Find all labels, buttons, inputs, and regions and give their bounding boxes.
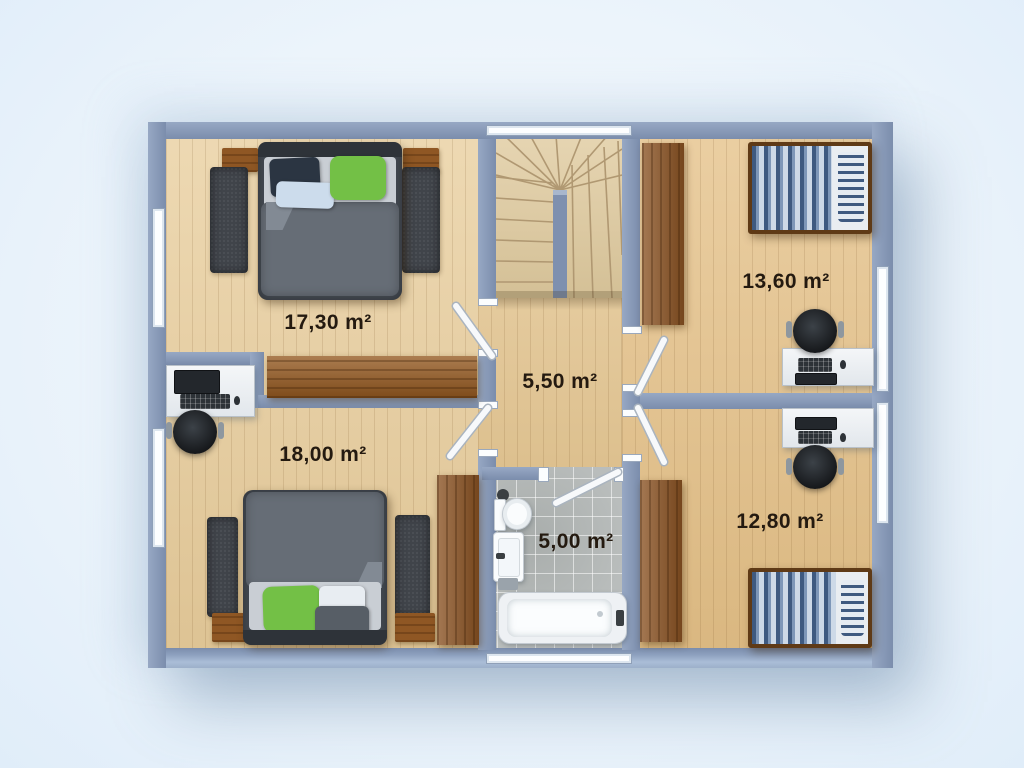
door-jamb <box>614 467 624 482</box>
stairs-shadow <box>496 298 622 310</box>
chair-armrest <box>838 458 844 475</box>
wall-hallway-right-upper <box>622 139 640 333</box>
single-bed-bottom-right <box>748 568 872 648</box>
door-jamb <box>622 409 642 417</box>
door-jamb <box>622 384 642 392</box>
canvas: 17,30 m² 18,00 m² 5,50 m² 13,60 m² 12,80… <box>0 0 1024 768</box>
area-label-bedroom-top-left: 17,30 m² <box>284 311 371 335</box>
wall-hallway-left-mid <box>478 355 496 407</box>
mouse <box>840 360 846 369</box>
staircase <box>496 135 622 298</box>
window-right-lower <box>876 402 889 524</box>
nightstand <box>395 613 435 642</box>
washbasin <box>493 532 524 582</box>
rug <box>402 167 440 273</box>
office-chair <box>793 445 837 489</box>
pillow-light-blue <box>276 181 335 209</box>
door-jamb <box>478 401 498 409</box>
wardrobe <box>642 143 684 325</box>
monitor <box>795 373 837 385</box>
chair-armrest <box>786 321 792 338</box>
striped-pillow <box>838 152 864 222</box>
chair-armrest <box>786 458 792 475</box>
door-jamb <box>538 467 549 482</box>
wall-exterior-right <box>872 122 893 668</box>
floor-plan: 17,30 m² 18,00 m² 5,50 m² 13,60 m² 12,80… <box>148 122 893 668</box>
toilet-bowl <box>502 498 532 530</box>
mouse <box>840 433 846 442</box>
area-label-bedroom-top-right: 13,60 m² <box>742 270 829 294</box>
rug <box>207 517 238 617</box>
striped-duvet <box>752 146 832 230</box>
double-bed-bottom-left <box>243 490 387 645</box>
window-bathroom-bottom <box>486 653 632 664</box>
door-jamb <box>622 454 642 462</box>
monitor <box>795 417 837 430</box>
wall-bathroom-top <box>482 467 546 480</box>
pillow-green <box>330 156 386 200</box>
window-left-upper <box>152 208 165 328</box>
door-jamb <box>622 326 642 334</box>
window-left-lower <box>152 428 165 548</box>
chair-armrest <box>218 422 224 439</box>
basin-faucet <box>496 553 505 559</box>
wardrobe <box>437 475 479 645</box>
keyboard <box>798 358 832 372</box>
rug <box>395 515 430 617</box>
mouse <box>234 396 240 405</box>
stair-newel-wall <box>553 190 567 298</box>
bathtub <box>498 592 627 644</box>
rug <box>210 167 248 273</box>
area-label-bedroom-bottom-left: 18,00 m² <box>279 443 366 467</box>
wall-divider-right <box>640 393 872 409</box>
headboard <box>258 142 402 157</box>
bathtub-faucet <box>616 610 624 626</box>
striped-pillow <box>841 580 864 636</box>
wardrobe <box>640 480 682 642</box>
wall-hallway-right-mid <box>622 391 640 409</box>
door-jamb <box>478 449 498 457</box>
pillow-green <box>262 585 322 633</box>
wall-hallway-left-upper <box>478 139 496 305</box>
office-chair <box>173 410 217 454</box>
sideboard-wardrobe <box>267 356 477 398</box>
single-bed-top-right <box>748 142 872 234</box>
bathtub-drain <box>597 611 603 617</box>
door-jamb <box>478 349 498 357</box>
wall-divider-left-a <box>166 352 258 365</box>
door-jamb <box>478 298 498 306</box>
area-label-hallway: 5,50 m² <box>522 370 597 394</box>
chair-armrest <box>838 321 844 338</box>
office-chair <box>793 309 837 353</box>
double-bed-top-left <box>258 142 402 300</box>
footboard <box>243 630 387 645</box>
chair-armrest <box>166 422 172 439</box>
monitor <box>174 370 220 394</box>
striped-duvet <box>752 572 836 644</box>
window-stairwell-top <box>486 125 632 136</box>
area-label-bedroom-bottom-right: 12,80 m² <box>736 510 823 534</box>
keyboard <box>798 431 832 444</box>
bathtub-inner <box>507 599 612 637</box>
keyboard <box>180 394 230 409</box>
area-label-bathroom: 5,00 m² <box>538 530 613 554</box>
basin-cabinet <box>498 578 518 590</box>
wall-exterior-left <box>148 122 166 668</box>
window-right-upper <box>876 266 889 392</box>
